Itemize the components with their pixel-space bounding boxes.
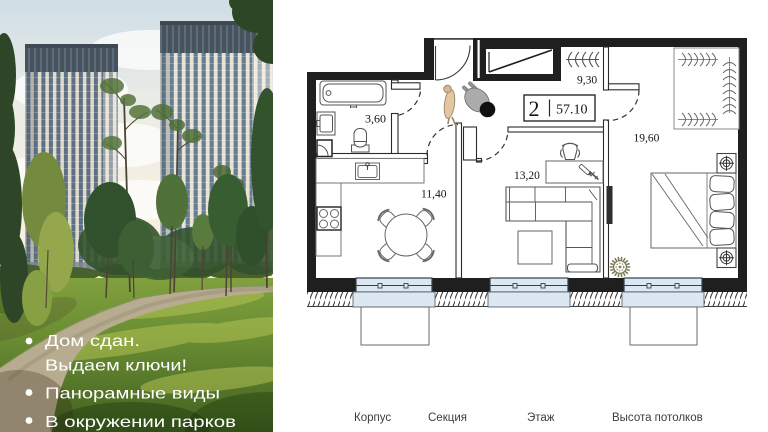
svg-text:19,60: 19,60 xyxy=(634,133,660,145)
svg-text:Панорамные виды: Панорамные виды xyxy=(45,386,220,403)
svg-text:Этаж: Этаж xyxy=(527,412,555,424)
svg-text:3,60: 3,60 xyxy=(365,114,386,126)
svg-text:Корпус: Корпус xyxy=(354,412,391,424)
svg-text:9,30: 9,30 xyxy=(577,75,597,87)
svg-text:13,20: 13,20 xyxy=(514,170,540,182)
svg-text:57.10: 57.10 xyxy=(556,103,588,118)
svg-text:11,40: 11,40 xyxy=(421,189,447,201)
svg-text:Секция: Секция xyxy=(428,412,467,424)
svg-text:Дом сдан.: Дом сдан. xyxy=(45,333,140,350)
svg-text:2: 2 xyxy=(529,96,540,121)
svg-text:Высота потолков: Высота потолков xyxy=(612,412,703,424)
svg-text:Выдаем ключи!: Выдаем ключи! xyxy=(45,358,187,375)
svg-text:В окружении парков: В окружении парков xyxy=(45,414,236,431)
